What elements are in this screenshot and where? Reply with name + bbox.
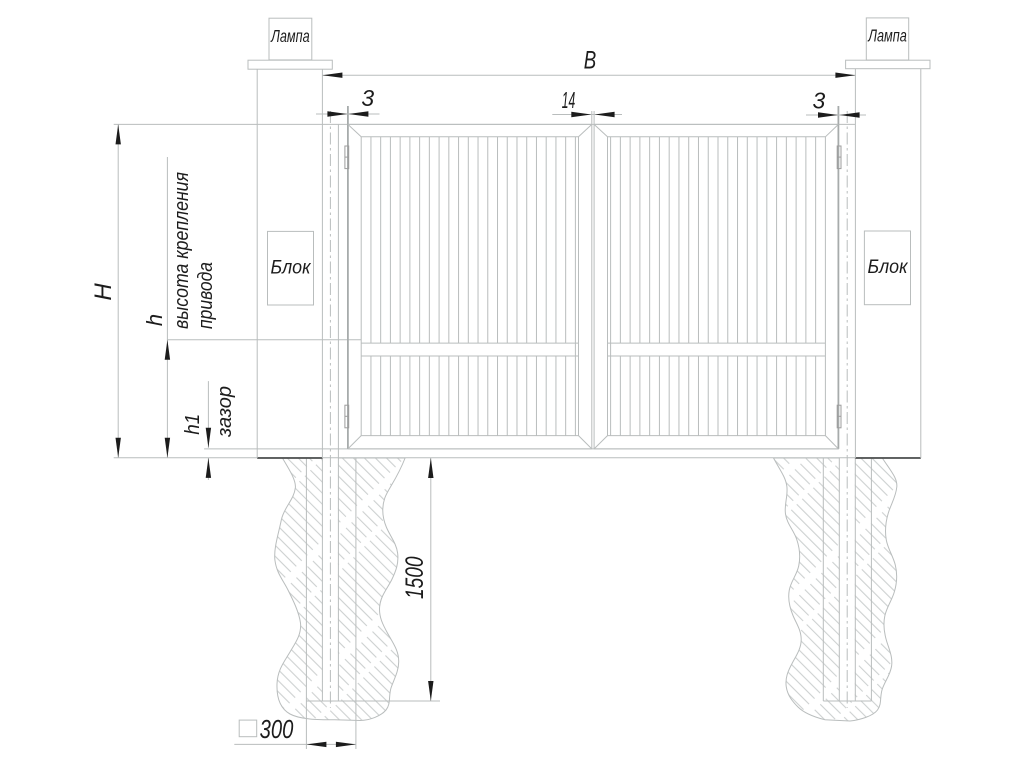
svg-text:3: 3 bbox=[813, 88, 826, 114]
svg-text:1500: 1500 bbox=[401, 556, 429, 599]
svg-text:Лампа: Лампа bbox=[868, 26, 907, 46]
svg-text:Лампа: Лампа bbox=[270, 26, 309, 46]
svg-text:В: В bbox=[584, 47, 597, 75]
svg-text:зазор: зазор bbox=[214, 386, 236, 438]
svg-text:H: H bbox=[90, 283, 117, 301]
svg-text:h1: h1 bbox=[182, 414, 204, 435]
svg-text:привода: привода bbox=[195, 262, 217, 329]
svg-text:300: 300 bbox=[260, 714, 294, 744]
svg-text:Блок: Блок bbox=[271, 258, 312, 279]
svg-text:h: h bbox=[142, 314, 167, 326]
svg-text:Блок: Блок bbox=[868, 257, 909, 278]
svg-text:3: 3 bbox=[361, 85, 374, 111]
svg-text:14: 14 bbox=[562, 87, 576, 113]
svg-text:высота крепления: высота крепления bbox=[171, 172, 193, 329]
